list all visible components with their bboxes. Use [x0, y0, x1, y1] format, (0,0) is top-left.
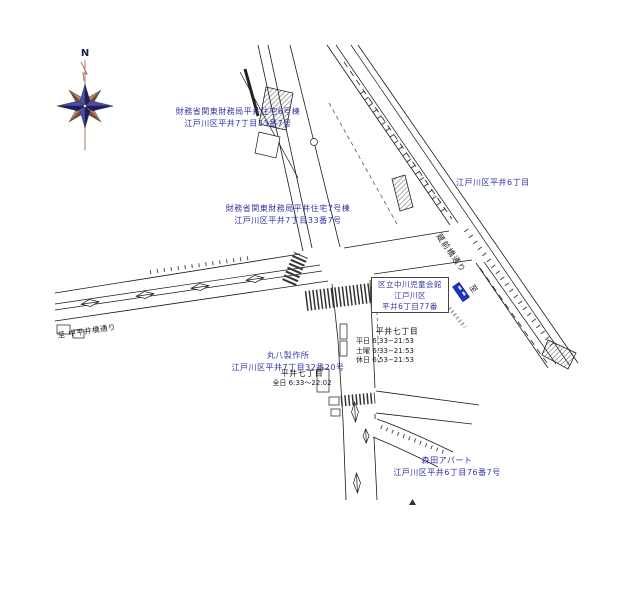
roads-layer — [55, 45, 578, 500]
road-direction-marker: 至 — [467, 283, 479, 295]
housing6-address: 江戸川区平井7丁目33番7号 — [168, 118, 308, 130]
bus-east-weekday: 平日 6:33−21:53 — [356, 337, 438, 347]
hall-name: 区立中川児童会館 — [372, 279, 448, 290]
landmark-circle-icon — [311, 139, 318, 146]
building-outline — [329, 397, 339, 405]
compass-arrow-icon — [81, 62, 87, 81]
bus-shelter — [340, 324, 347, 339]
label-housing7: 財務省関東財務局平井住宅7号棟 江戸川区平井7丁目33番7号 — [218, 203, 358, 227]
map-page: N 蔵前橋通り 至 至 中平井橋通り 財務省関東財務局平井住宅6号棟 江戸川区平… — [0, 0, 640, 609]
map-canvas: N 蔵前橋通り 至 至 中平井橋通り — [0, 0, 640, 609]
road-direction-west: 至 中平井橋通り — [57, 321, 117, 340]
compass-north-label: N — [81, 48, 89, 59]
label-apartment: 森田アパート 江戸川区平井6丁目76番7号 — [384, 455, 510, 479]
housing6-name: 財務省関東財務局平井住宅6号棟 — [168, 106, 308, 118]
label-childrens-hall-box: 区立中川児童会館 江戸川区 平井6丁目77番 — [371, 277, 449, 313]
bus-west-name: 平井七丁目 — [262, 368, 342, 379]
label-housing6: 財務省関東財務局平井住宅6号棟 江戸川区平井7丁目33番7号 — [168, 106, 308, 130]
label-bus-stop-east: 平井七丁目 平日 6:33−21:53 土曜 6:33−21:53 休日 6:5… — [356, 326, 438, 366]
road-name-main: 蔵前橋通り — [434, 231, 468, 274]
compass-rose: N — [57, 48, 113, 150]
apartment-address: 江戸川区平井6丁目76番7号 — [384, 467, 510, 479]
building-outline — [331, 409, 340, 416]
bus-east-holiday: 休日 6:53−21:53 — [356, 356, 438, 366]
bus-east-saturday: 土曜 6:33−21:53 — [356, 347, 438, 357]
hall-ward: 江戸川区 — [372, 290, 448, 301]
label-bus-stop-west: 平井七丁目 全日 6:33〜22:02 — [262, 368, 342, 389]
bus-west-hours: 全日 6:33〜22:02 — [262, 379, 342, 389]
apartment-name: 森田アパート — [384, 455, 510, 467]
hatched-structure — [542, 340, 576, 369]
triangle-marker-icon — [409, 499, 416, 505]
hatched-structure — [392, 175, 413, 211]
bus-stop-marker-icon — [453, 282, 470, 301]
hall-address: 平井6丁目77番 — [372, 301, 448, 312]
bus-east-name: 平井七丁目 — [356, 326, 438, 337]
district-name: 江戸川区平井6丁目 — [456, 177, 530, 189]
housing7-address: 江戸川区平井7丁目33番7号 — [218, 215, 358, 227]
housing7-name: 財務省関東財務局平井住宅7号棟 — [218, 203, 358, 215]
building-outline — [255, 132, 280, 158]
label-district: 江戸川区平井6丁目 — [456, 177, 530, 189]
factory-name: 丸八製作所 — [224, 350, 352, 362]
